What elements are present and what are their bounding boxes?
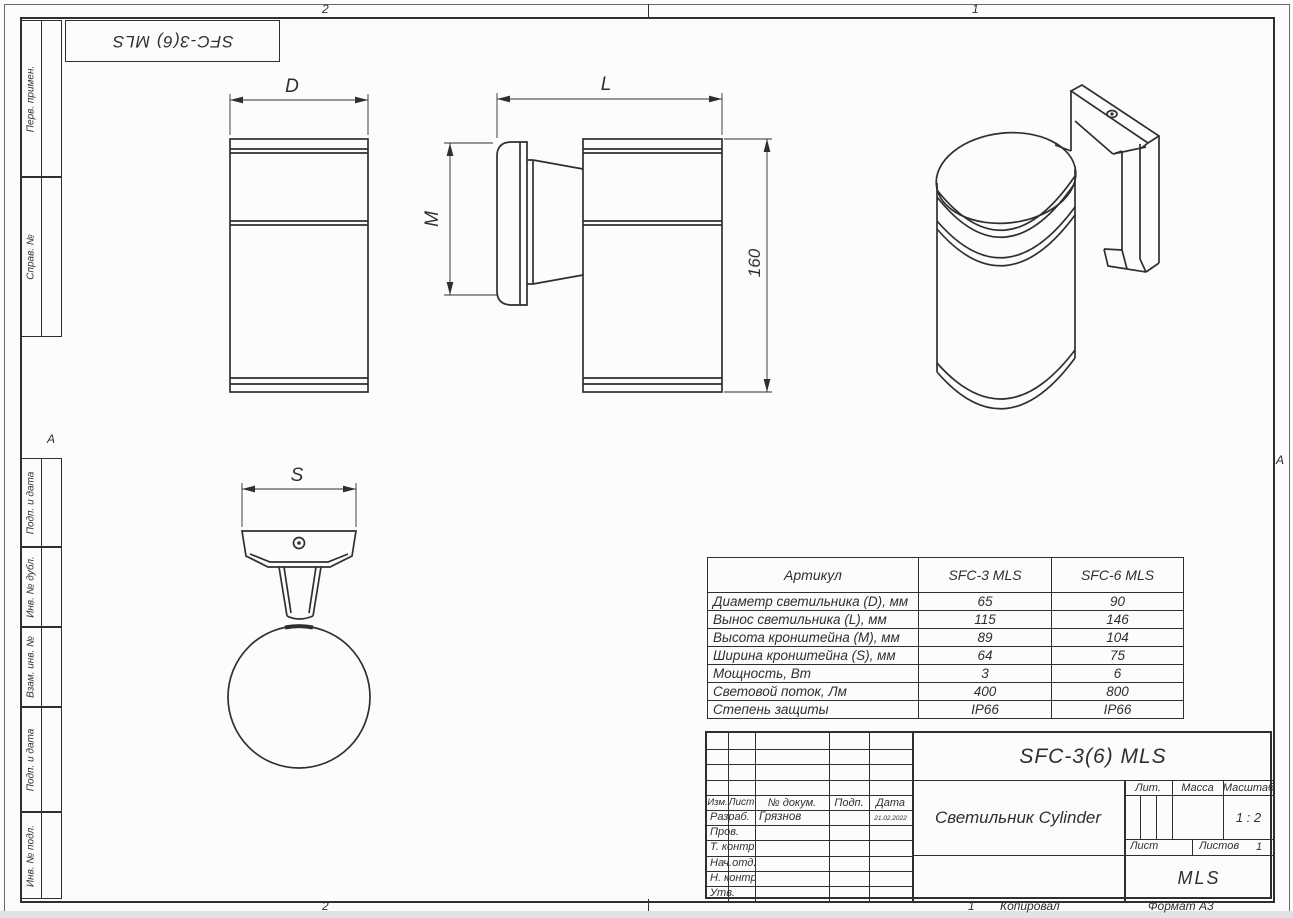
tb-product-name: Светильник Cylinder xyxy=(912,780,1124,855)
bottom-view xyxy=(228,531,370,768)
spec-cell: 75 xyxy=(1052,647,1184,665)
tb-lit-label: Лит. xyxy=(1124,780,1172,795)
tb-col-podp: Подп. xyxy=(829,795,869,810)
spec-cell: 90 xyxy=(1052,593,1184,611)
spec-header-sfc6: SFC-6 MLS xyxy=(1052,558,1184,593)
spec-cell: Вынос светильника (L), мм xyxy=(708,611,919,629)
tb-row-label: Утв. xyxy=(710,887,755,901)
spec-cell: IP66 xyxy=(919,701,1052,719)
dim-label-s: S xyxy=(291,465,304,487)
spec-row: Мощность, Вт 3 6 xyxy=(708,665,1184,683)
front-view xyxy=(230,139,368,392)
tb-row-label: Пров. xyxy=(710,826,755,840)
spec-cell: Световой поток, Лм xyxy=(708,683,919,701)
tb-scale-value: 1 : 2 xyxy=(1223,795,1274,839)
spec-row: Степень защиты IP66 IP66 xyxy=(708,701,1184,719)
spec-cell: 65 xyxy=(919,593,1052,611)
spec-header-sfc3: SFC-3 MLS xyxy=(919,558,1052,593)
spec-cell: Диаметр светильника (D), мм xyxy=(708,593,919,611)
dimension-l xyxy=(497,93,722,138)
spec-cell: Мощность, Вт xyxy=(708,665,919,683)
title-block: Изм. Лист № докум. Подп. Дата Разраб. Гр… xyxy=(705,731,1272,899)
spec-row: Ширина кронштейна (S), мм 64 75 xyxy=(708,647,1184,665)
spec-header-article: Артикул xyxy=(708,558,919,593)
tb-sheet-label: Лист xyxy=(1130,840,1190,854)
tb-col-doc: № докум. xyxy=(755,795,829,810)
tb-col-izm: Изм. xyxy=(707,795,728,810)
tb-row-label: Н. контр. xyxy=(710,872,755,886)
tb-designation: SFC-3(6) MLS xyxy=(912,733,1274,780)
dim-label-l: L xyxy=(601,74,612,96)
tb-col-list: Лист xyxy=(728,795,755,810)
tb-scale-label: Масштаб xyxy=(1223,780,1274,795)
side-view xyxy=(497,139,722,392)
spec-cell: 400 xyxy=(919,683,1052,701)
spec-cell: 64 xyxy=(919,647,1052,665)
dimension-m xyxy=(444,143,497,295)
tb-mass-label: Масса xyxy=(1172,780,1223,795)
dimension-s xyxy=(242,483,356,527)
spec-cell: 6 xyxy=(1052,665,1184,683)
tb-row-label: Т. контр. xyxy=(710,841,755,855)
drawing-sheet: 2 1 2 1 Копировал Формат А3 А А SFC-3(6)… xyxy=(0,0,1293,918)
dimension-d xyxy=(230,94,368,135)
tb-author-name: Грязнов xyxy=(759,811,829,825)
tb-company: MLS xyxy=(1124,855,1274,901)
spec-row: Световой поток, Лм 400 800 xyxy=(708,683,1184,701)
spec-cell: 115 xyxy=(919,611,1052,629)
spec-cell: 3 xyxy=(919,665,1052,683)
tb-row-label: Разраб. xyxy=(710,811,755,825)
spec-cell: IP66 xyxy=(1052,701,1184,719)
spec-row: Высота кронштейна (M), мм 89 104 xyxy=(708,629,1184,647)
spec-cell: 800 xyxy=(1052,683,1184,701)
tb-col-data: Дата xyxy=(869,795,912,810)
spec-cell: 146 xyxy=(1052,611,1184,629)
spec-row: Вынос светильника (L), мм 115 146 xyxy=(708,611,1184,629)
dim-label-m: M xyxy=(422,211,444,227)
spec-header-row: Артикул SFC-3 MLS SFC-6 MLS xyxy=(708,558,1184,593)
tb-sheets-value: 1 xyxy=(1247,840,1271,854)
spec-table: Артикул SFC-3 MLS SFC-6 MLS Диаметр свет… xyxy=(707,557,1184,719)
tb-row-label: Нач.отд. xyxy=(710,857,755,871)
spec-row: Диаметр светильника (D), мм 65 90 xyxy=(708,593,1184,611)
tb-sheets-label: Листов xyxy=(1199,840,1247,854)
spec-cell: Высота кронштейна (M), мм xyxy=(708,629,919,647)
spec-cell: Ширина кронштейна (S), мм xyxy=(708,647,919,665)
dim-label-d: D xyxy=(285,76,299,98)
spec-cell: Степень защиты xyxy=(708,701,919,719)
spec-cell: 89 xyxy=(919,629,1052,647)
isometric-view xyxy=(932,85,1159,409)
spec-cell: 104 xyxy=(1052,629,1184,647)
dim-label-160: 160 xyxy=(745,249,765,277)
tb-date: 21.02.2022 xyxy=(869,811,912,825)
